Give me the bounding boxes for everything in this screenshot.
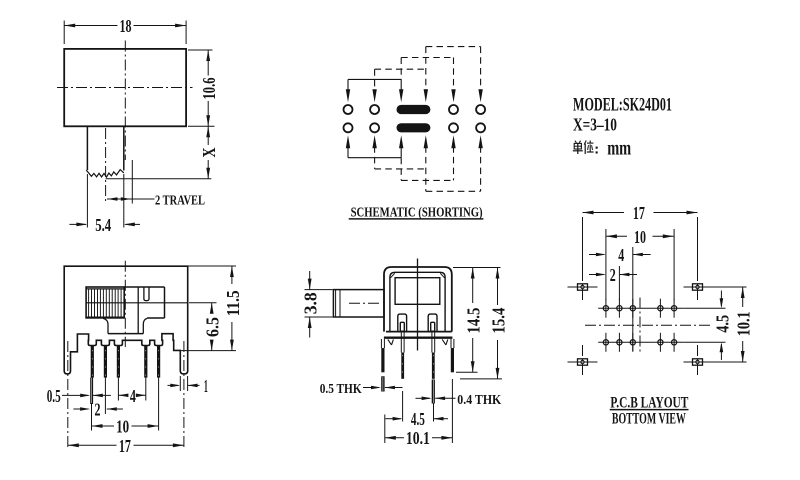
svg-text:5.4: 5.4 [95,215,111,235]
svg-text:11.5: 11.5 [223,290,243,316]
svg-text:6.5: 6.5 [203,317,223,337]
svg-text:14.5: 14.5 [464,308,484,334]
svg-text:BOTTOM VIEW: BOTTOM VIEW [612,410,686,427]
svg-text:4: 4 [130,386,136,406]
svg-text:MODEL:SK24D01: MODEL:SK24D01 [573,95,672,116]
svg-text:1: 1 [204,376,208,396]
svg-text:2 TRAVEL: 2 TRAVEL [155,194,205,209]
svg-text:mm: mm [607,136,631,160]
svg-text:X=3–10: X=3–10 [573,115,617,135]
svg-text:10: 10 [116,417,129,437]
svg-text:18: 18 [120,16,132,36]
svg-text:10.1: 10.1 [406,428,430,448]
svg-text:10: 10 [634,227,646,247]
svg-text:0.5: 0.5 [47,386,61,406]
svg-text:15.4: 15.4 [489,308,509,334]
svg-text:3.8: 3.8 [301,292,321,314]
svg-text:0.5 THK: 0.5 THK [320,382,362,397]
svg-text:17: 17 [633,203,645,223]
svg-text:4.5: 4.5 [712,315,732,333]
svg-text:10.6: 10.6 [199,78,219,100]
svg-text:10.1: 10.1 [734,311,754,336]
svg-text:4.5: 4.5 [411,409,425,429]
svg-text:2: 2 [610,265,616,285]
svg-text:17: 17 [119,436,131,456]
svg-text:0.4 THK: 0.4 THK [457,393,501,408]
svg-text:X: X [199,148,219,158]
svg-text:2: 2 [95,400,101,420]
svg-text:4: 4 [618,245,624,265]
